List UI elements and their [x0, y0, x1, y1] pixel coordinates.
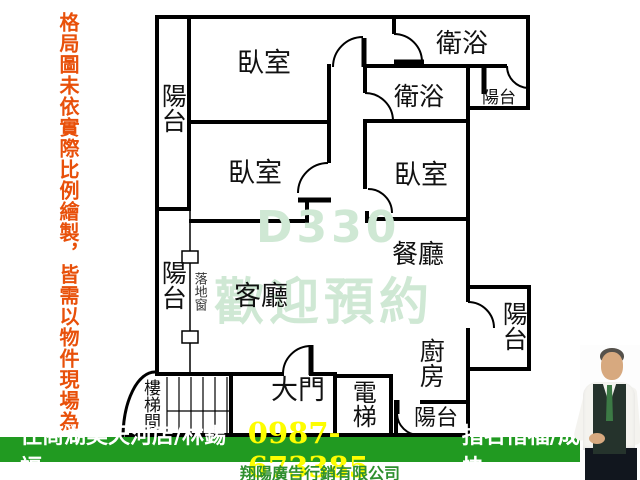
label-bedroom-1: 臥室	[237, 50, 291, 78]
label-balcony-right: 陽台	[500, 301, 526, 351]
watermark-code: D330	[256, 202, 400, 253]
label-bedroom-2: 臥室	[228, 160, 282, 188]
flyer-canvas: 格局圖未依實際比例繪製，皆需以物件現場為 D330 歡迎預約 臥室 衛浴 衛浴 …	[0, 0, 640, 480]
label-bathroom-1: 衛浴	[436, 31, 488, 58]
label-kitchen: 廚房	[417, 338, 443, 388]
agent-head	[601, 352, 623, 380]
company-name: 翔陽廣告行銷有限公司	[0, 460, 640, 480]
agent-tie	[606, 385, 613, 421]
label-balcony-mid-left: 陽台	[159, 260, 185, 310]
label-balcony-top-right: 陽台	[482, 90, 516, 108]
label-window: 落地窗	[192, 272, 206, 311]
label-balcony-top-left: 陽台	[159, 83, 185, 133]
agent-photo	[580, 345, 640, 480]
label-main-door: 大門	[271, 377, 325, 405]
label-dining-room: 餐廳	[392, 242, 444, 269]
window-symbol	[182, 331, 198, 343]
label-bathroom-2: 衛浴	[394, 84, 444, 110]
contact-bar: 住商湖美天河店/林錫福 0987-673385 指名惜福/成交最快	[0, 437, 640, 462]
agent-hand	[589, 433, 605, 444]
label-living-room: 客廳	[234, 283, 288, 311]
label-bedroom-3: 臥室	[394, 162, 448, 190]
